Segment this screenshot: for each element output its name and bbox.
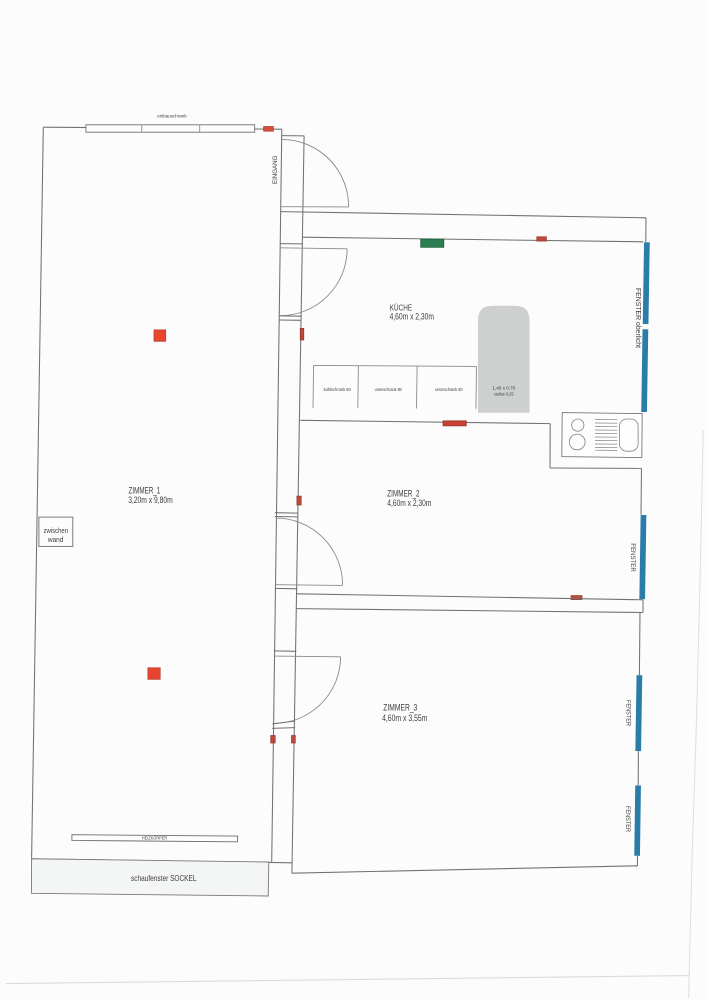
- svg-text:schaufenster SOCKEL: schaufenster SOCKEL: [131, 873, 197, 883]
- svg-text:ZIMMER_1: ZIMMER_1: [129, 485, 161, 495]
- svg-text:1,40 x 0,70: 1,40 x 0,70: [492, 385, 515, 390]
- svg-text:wand: wand: [47, 537, 64, 544]
- svg-text:FENSTER: FENSTER: [625, 700, 632, 726]
- svg-text:ZIMMER_3: ZIMMER_3: [383, 703, 417, 713]
- svg-text:4,60m x 2,30m: 4,60m x 2,30m: [387, 498, 431, 508]
- svg-text:HEIZKÖRPER: HEIZKÖRPER: [142, 836, 168, 841]
- svg-text:3,20m x 9,80m: 3,20m x 9,80m: [128, 495, 173, 505]
- svg-text:4,60m x 3,55m: 4,60m x 3,55m: [382, 713, 427, 723]
- svg-text:4,60m x 2,30m: 4,60m x 2,30m: [390, 312, 434, 322]
- svg-text:EINGANG: EINGANG: [272, 156, 279, 185]
- svg-text:FENSTER oberlicht: FENSTER oberlicht: [634, 288, 641, 348]
- svg-text:FENSTER: FENSTER: [629, 543, 636, 572]
- svg-text:einbauschrank: einbauschrank: [157, 114, 187, 119]
- svg-text:kühlschrank 60: kühlschrank 60: [324, 387, 352, 392]
- svg-text:zwischen: zwischen: [44, 528, 69, 535]
- svg-text:unterschrank 80: unterschrank 80: [435, 387, 463, 392]
- svg-text:unterschrank 80: unterschrank 80: [375, 387, 403, 392]
- svg-text:FENSTER: FENSTER: [624, 806, 631, 832]
- svg-text:radius 0,25: radius 0,25: [494, 391, 514, 396]
